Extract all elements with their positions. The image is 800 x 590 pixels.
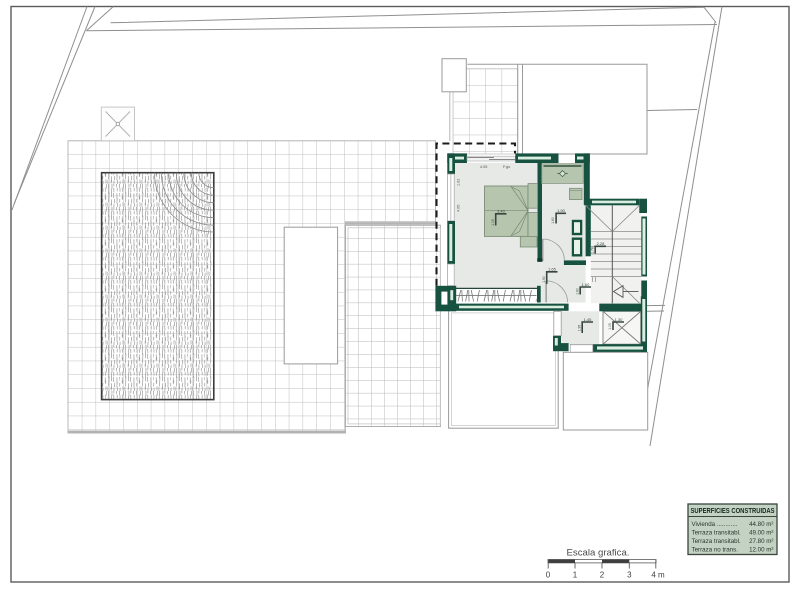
svg-text:Terraza no trans.: Terraza no trans. xyxy=(692,546,739,553)
svg-text:4.05: 4.05 xyxy=(480,165,487,169)
svg-text:49.00 m²: 49.00 m² xyxy=(749,529,773,536)
svg-text:2: 2 xyxy=(600,571,605,580)
svg-text:1.65: 1.65 xyxy=(548,267,557,272)
svg-text:1.05: 1.05 xyxy=(608,323,612,330)
svg-text:1.95: 1.95 xyxy=(577,325,581,332)
svg-text:1.78: 1.78 xyxy=(590,247,594,254)
svg-text:Terraza transitabl.: Terraza transitabl. xyxy=(692,538,741,545)
svg-text:1.90: 1.90 xyxy=(557,208,566,213)
svg-text:4.05: 4.05 xyxy=(457,205,461,212)
svg-text:Escala grafica.: Escala grafica. xyxy=(567,548,630,559)
svg-text:1.02: 1.02 xyxy=(457,179,461,186)
svg-text:SUPERFICIES CONSTRUIDAS: SUPERFICIES CONSTRUIDAS xyxy=(691,506,775,515)
svg-text:3: 3 xyxy=(627,571,632,580)
svg-text:4 m: 4 m xyxy=(651,571,665,580)
svg-text:F.go: F.go xyxy=(503,165,510,169)
svg-text:3.40: 3.40 xyxy=(497,209,506,214)
svg-text:Terraza transitabl.: Terraza transitabl. xyxy=(692,529,741,536)
svg-text:0: 0 xyxy=(546,571,551,580)
svg-text:1.90: 1.90 xyxy=(542,276,546,283)
svg-text:1: 1 xyxy=(573,571,578,580)
svg-text:1.45: 1.45 xyxy=(584,317,593,322)
svg-text:Vivienda ............: Vivienda ............ xyxy=(692,521,738,528)
svg-text:1.05: 1.05 xyxy=(491,219,495,226)
svg-text:12.00 m²: 12.00 m² xyxy=(749,546,773,553)
svg-text:27.80 m²: 27.80 m² xyxy=(749,538,773,545)
svg-text:1.30: 1.30 xyxy=(615,317,624,322)
svg-text:1.60: 1.60 xyxy=(582,282,591,287)
svg-text:2.28: 2.28 xyxy=(597,241,606,246)
svg-text:1.60: 1.60 xyxy=(551,217,555,224)
svg-text:44.80 m²: 44.80 m² xyxy=(749,521,773,528)
svg-text:1.60: 1.60 xyxy=(575,288,579,295)
